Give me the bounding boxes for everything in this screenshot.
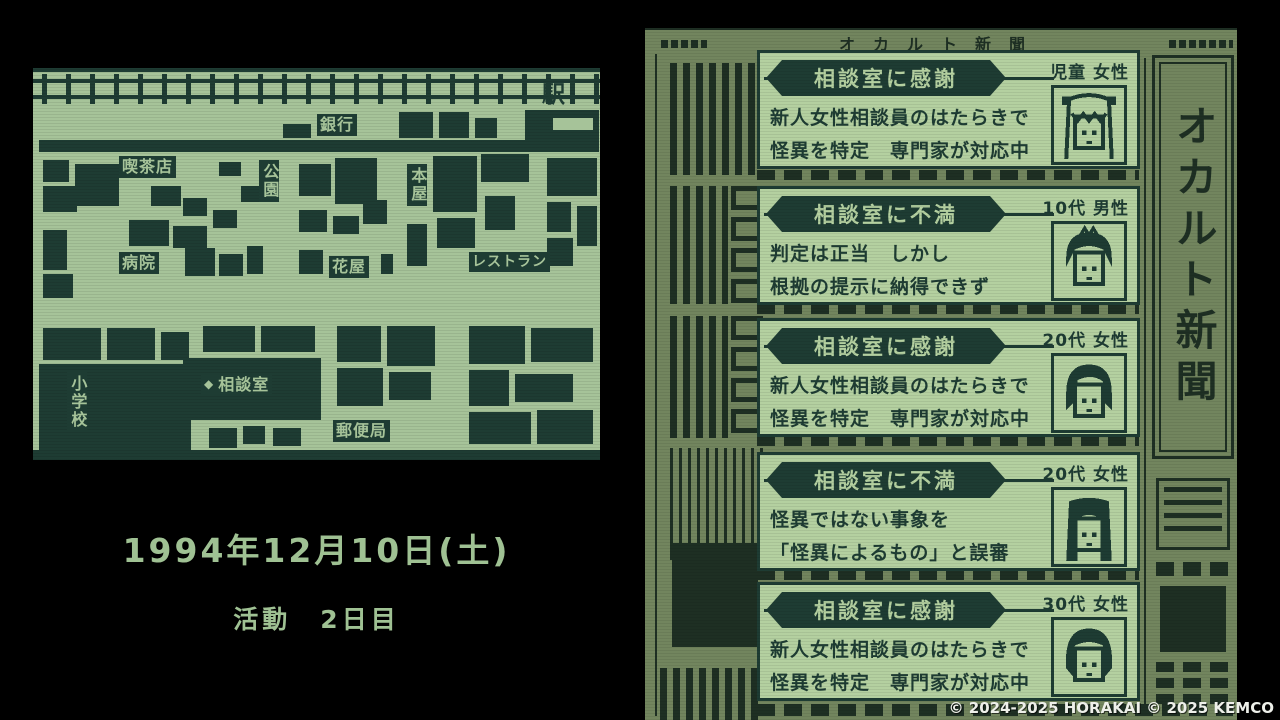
map-building <box>33 450 600 460</box>
feedback-badge-text: 相談室に感謝 <box>814 331 958 361</box>
paper-text-columns <box>670 63 756 175</box>
map-building <box>299 210 327 232</box>
map-building <box>273 428 301 446</box>
paper-photo-block <box>672 543 758 647</box>
map-building <box>39 140 599 152</box>
map-building <box>389 372 431 400</box>
map-building <box>183 198 207 216</box>
map-building <box>43 274 73 298</box>
demographic-label: 10代 男性 <box>1042 194 1129 219</box>
paper-line <box>1164 487 1222 492</box>
map-building <box>107 328 155 360</box>
map-building <box>299 164 331 196</box>
map-building <box>469 326 525 364</box>
feedback-badge-text: 相談室に感謝 <box>814 63 958 93</box>
paper-text-columns <box>670 186 728 304</box>
map-building <box>337 368 383 406</box>
map-building <box>39 364 191 452</box>
feedback-badge-ribbon: 相談室に不満 <box>766 196 1006 232</box>
map-building <box>261 326 315 352</box>
feedback-line-2: 怪異を特定 専門家が対応中 <box>770 668 1030 695</box>
map-building <box>547 202 571 232</box>
paper-top-rule <box>645 28 1237 30</box>
map-building <box>43 160 69 182</box>
game-screen[interactable]: 銀行 駅 喫茶店 公園 本屋 病院 花屋 レストラン 小学校 ◆ 相談室 郵便局… <box>0 0 1280 720</box>
feedback-card: 相談室に不満 10代 男性 判定は正当 しかし 根拠の提示に納得できず <box>757 186 1140 305</box>
railway-tracks-icon <box>33 74 600 104</box>
occult-newspaper: オカルト新聞 オカルト新聞 相談室に感謝 児童 女性 新人女性相談員のはたらきで… <box>645 28 1237 720</box>
map-building <box>203 326 255 352</box>
map-building <box>43 230 67 270</box>
map-building <box>161 332 189 360</box>
map-label-park: 公園 <box>259 160 279 202</box>
paper-dash-row <box>757 436 1139 446</box>
map-building <box>387 326 435 366</box>
paper-photo-block <box>1160 586 1226 652</box>
map-building <box>547 238 573 266</box>
map-label-consultation-room: ◆ 相談室 <box>201 374 272 396</box>
map-building <box>219 162 241 176</box>
consultation-marker-icon: ◆ <box>204 378 214 392</box>
feedback-card: 相談室に感謝 児童 女性 新人女性相談員のはたらきで 怪異を特定 専門家が対応中 <box>757 50 1140 169</box>
map-building <box>151 186 181 206</box>
map-building <box>129 220 169 246</box>
feedback-card: 相談室に感謝 30代 女性 新人女性相談員のはたらきで 怪異を特定 専門家が対応… <box>757 582 1140 701</box>
date-text: 1994年12月10日(土) <box>33 524 600 572</box>
feedback-card: 相談室に感謝 20代 女性 新人女性相談員のはたらきで 怪異を特定 専門家が対応… <box>757 318 1140 437</box>
masthead-frame: オカルト新聞 <box>1159 62 1227 452</box>
feedback-badge-ribbon: 相談室に感謝 <box>766 60 1006 96</box>
activity-day-text: 活動 2日目 <box>33 600 600 636</box>
map-label-elementary-school: 小学校 <box>67 372 87 432</box>
town-map: 銀行 駅 喫茶店 公園 本屋 病院 花屋 レストラン 小学校 ◆ 相談室 郵便局 <box>33 68 600 460</box>
map-building <box>577 206 597 246</box>
station-platform <box>553 118 593 130</box>
map-building <box>43 328 101 360</box>
map-building <box>213 210 237 228</box>
paper-dash-row <box>1156 678 1230 688</box>
map-building <box>433 156 477 212</box>
map-building <box>209 428 237 448</box>
map-building <box>247 246 263 274</box>
map-building <box>43 186 77 212</box>
map-label-bookstore: 本屋 <box>407 164 427 206</box>
map-building <box>485 196 515 230</box>
map-label-station: 駅 <box>539 80 568 110</box>
map-building <box>219 254 243 276</box>
feedback-line-2: 根拠の提示に納得できず <box>770 272 990 299</box>
feedback-badge-text: 相談室に不満 <box>814 465 958 495</box>
paper-dash-row <box>757 170 1139 180</box>
map-building <box>437 218 475 248</box>
map-building <box>173 226 207 248</box>
map-building <box>241 186 261 202</box>
paper-text-columns <box>670 316 728 438</box>
paper-dash-row <box>757 304 1139 314</box>
feedback-line-1: 判定は正当 しかし <box>770 239 950 266</box>
map-building <box>399 112 433 138</box>
feedback-badge-ribbon: 相談室に感謝 <box>766 592 1006 628</box>
demographic-label: 20代 女性 <box>1042 460 1129 485</box>
feedback-line-2: 「怪異によるもの」と誤審 <box>770 538 1009 565</box>
feedback-line-1: 新人女性相談員のはたらきで <box>770 371 1030 398</box>
map-building <box>75 164 119 206</box>
paper-dash-row <box>757 570 1139 580</box>
map-label-flower-shop: 花屋 <box>329 256 369 278</box>
map-building <box>299 250 323 274</box>
map-building <box>335 158 377 204</box>
paper-column-rule <box>1144 58 1146 713</box>
map-label-restaurant: レストラン <box>469 252 550 272</box>
map-building <box>515 374 573 402</box>
map-label-bank: 銀行 <box>317 114 357 136</box>
map-building <box>363 200 387 224</box>
feedback-badge-text: 相談室に感謝 <box>814 595 958 625</box>
consultation-room-label: 相談室 <box>218 376 269 394</box>
paper-left-rule <box>655 54 657 716</box>
paper-line <box>1164 526 1222 531</box>
map-building <box>381 254 393 274</box>
feedback-badge-ribbon: 相談室に不満 <box>766 462 1006 498</box>
portrait-image <box>1051 85 1127 165</box>
portrait-image <box>1051 353 1127 433</box>
map-building <box>531 328 593 362</box>
paper-line <box>1164 513 1222 518</box>
copyright-notice: © 2024-2025 HORAKAI © 2025 KEMCO <box>949 699 1274 717</box>
feedback-line-2: 怪異を特定 専門家が対応中 <box>770 404 1030 431</box>
feedback-line-1: 怪異ではない事象を <box>770 505 950 532</box>
map-building <box>475 118 497 138</box>
map-building <box>185 248 215 276</box>
feedback-card: 相談室に不満 20代 女性 怪異ではない事象を 「怪異によるもの」と誤審 <box>757 452 1140 571</box>
newspaper-masthead: オカルト新聞 <box>1152 55 1234 459</box>
feedback-badge-text: 相談室に不満 <box>814 199 958 229</box>
feedback-badge-ribbon: 相談室に感謝 <box>766 328 1006 364</box>
map-building <box>407 224 427 266</box>
map-building <box>333 216 359 234</box>
portrait-image <box>1051 617 1127 697</box>
paper-dash-row <box>1156 662 1230 672</box>
paper-text-columns <box>660 668 760 720</box>
paper-lined-box <box>1156 478 1230 550</box>
map-building <box>337 326 381 362</box>
feedback-line-1: 新人女性相談員のはたらきで <box>770 635 1030 662</box>
demographic-label: 30代 女性 <box>1042 590 1129 615</box>
date-caption: 1994年12月10日(土) 活動 2日目 <box>33 524 600 636</box>
demographic-label: 児童 女性 <box>1050 58 1129 83</box>
map-building <box>283 124 311 138</box>
map-building <box>547 158 597 196</box>
map-label-hospital: 病院 <box>119 252 159 274</box>
demographic-label: 20代 女性 <box>1042 326 1129 351</box>
map-label-cafe: 喫茶店 <box>119 156 176 178</box>
map-label-post-office: 郵便局 <box>333 420 390 442</box>
portrait-image <box>1051 221 1127 301</box>
paper-line <box>1164 500 1222 505</box>
feedback-line-2: 怪異を特定 専門家が対応中 <box>770 136 1030 163</box>
map-building <box>243 426 265 444</box>
feedback-line-1: 新人女性相談員のはたらきで <box>770 103 1030 130</box>
map-building <box>469 412 531 444</box>
map-building <box>469 370 509 406</box>
portrait-image <box>1051 487 1127 567</box>
map-building <box>537 410 593 444</box>
map-building <box>33 68 600 72</box>
map-building <box>439 112 469 138</box>
masthead-vertical-title: オカルト新聞 <box>1172 104 1214 410</box>
map-building <box>481 154 529 182</box>
paper-dash-row <box>1156 562 1230 576</box>
